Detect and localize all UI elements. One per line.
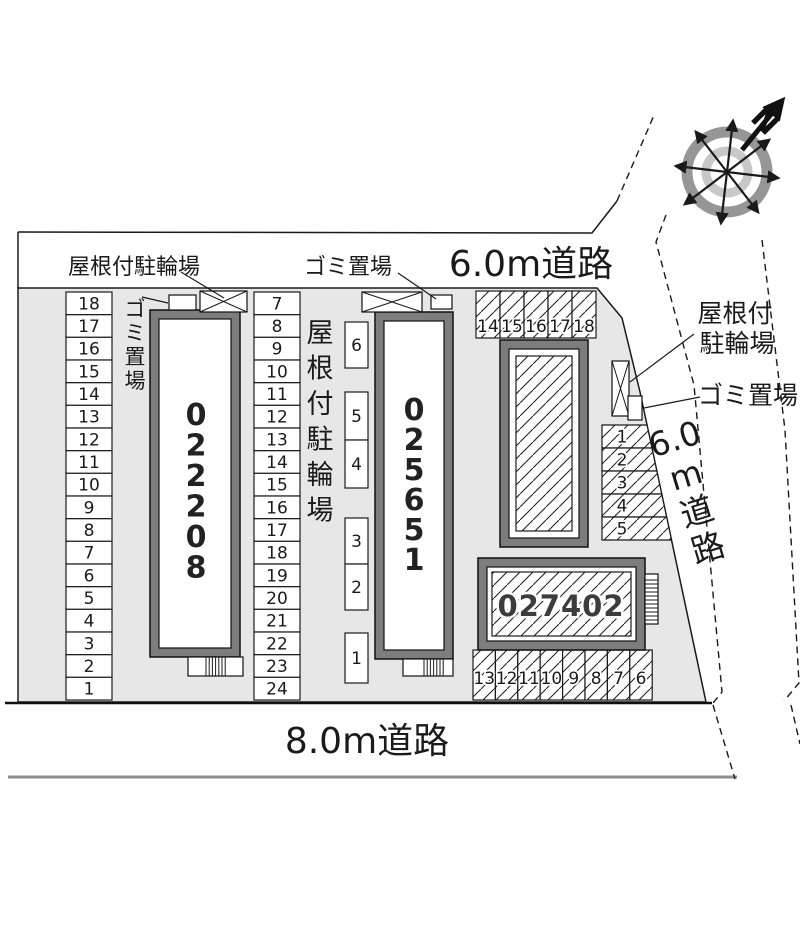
parking-space-number: 11 [518,669,540,689]
garbage-box-right [628,396,642,420]
road-label-top: 6.0m道路 [449,244,613,285]
building-number-vertical: 022208 [186,398,207,586]
vertical-text-char: 駐 [307,425,334,456]
parking-space-number: 7 [272,294,283,314]
parking-row-bottom: 131211109876 [473,650,652,700]
parking-space-number: 2 [84,657,95,677]
vertical-text-char: 場 [307,496,334,527]
parking-space-number: 16 [78,340,100,360]
parking-space-number: 8 [591,669,602,689]
parking-space-number: 3 [617,474,628,494]
pointer-right-garbage [644,397,700,408]
vertical-text-char: ミ [125,321,146,345]
parking-space-number: 12 [496,669,518,689]
road-label-bottom: 8.0m道路 [285,721,449,762]
vertical-text-char: 置 [125,345,146,369]
parking-space-number: 9 [84,498,95,518]
parking-space-number: 16 [266,498,288,518]
parking-space-number: 1 [84,680,95,700]
vertical-text-char: 輪 [307,460,334,491]
stairs-middle-building [403,659,453,676]
parking-space-number: 23 [266,657,288,677]
parking-space-number: 6 [636,669,647,689]
parking-space-number: 10 [266,362,288,382]
vertical-text-char: ゴ [125,297,146,321]
parking-space-number: 14 [78,385,100,405]
parking-space-number: 12 [78,430,100,450]
parking-space-number: 6 [84,566,95,586]
parking-space-number: 6 [351,336,362,356]
parking-space-number: 15 [501,317,523,337]
parking-space-number: 12 [266,408,288,428]
right-road-left-edge-crossing [713,705,735,779]
vertical-text-char: 8 [186,551,207,586]
bicycle-parking-box-left [200,291,247,312]
parking-space-number: 2 [351,578,362,598]
parking-space [602,517,672,540]
parking-space-number: 18 [573,317,595,337]
parking-space-number: 4 [617,497,628,517]
vertical-text-char: 根 [307,354,334,385]
label-right-bicycle-line2: 駐輪場 [699,329,774,358]
parking-space [602,448,657,471]
parking-space [602,471,662,494]
vertical-text-char: 屋 [307,318,334,349]
building-025651: 025651 [375,312,453,659]
bicycle-parking-box-middle [362,292,422,312]
parking-space-number: 5 [84,589,95,609]
parking-row-top-right: 1415161718 [476,291,596,338]
label-top-bicycle: 屋根付駐輪場 [68,255,200,280]
parking-space-number: 10 [541,669,563,689]
parking-space-number: 1 [617,428,628,448]
label-left-garbage-vertical: ゴミ置場 [125,297,146,393]
parking-space-number: 22 [266,634,288,654]
parking-space-number: 13 [78,408,100,428]
parking-space-number: 5 [617,520,628,540]
garbage-box-left [169,295,196,310]
label-top-garbage: ゴミ置場 [304,255,392,280]
parking-space-number: 15 [266,476,288,496]
building-hatched [500,340,588,547]
label-right-bicycle-line1: 屋根付 [697,299,772,328]
parking-space-number: 4 [84,612,95,632]
parking-space-number: 7 [613,669,624,689]
parking-space-number: 11 [266,385,288,405]
compass: N [676,100,786,223]
parking-space-number: 2 [617,451,628,471]
parking-space-number: 1 [351,649,362,669]
building-number-vertical: 025651 [404,393,425,578]
parking-space-number: 3 [351,532,362,552]
parking-space-number: 7 [84,544,95,564]
parking-space-number: 21 [266,612,288,632]
parking-space-number: 18 [266,544,288,564]
building-hatch-area [516,356,572,531]
parking-space-number: 11 [78,453,100,473]
pointer-right-bicycle [630,334,694,382]
parking-space-number: 17 [266,521,288,541]
parking-space-number: 3 [84,634,95,654]
parking-space-number: 14 [477,317,499,337]
parking-space-number: 20 [266,589,288,609]
vertical-text-char: 付 [307,389,334,420]
parking-space-number: 13 [473,669,495,689]
parking-space [602,494,667,517]
parking-space-number: 9 [272,340,283,360]
parking-column-left: 181716151413121110987654321 [66,292,112,700]
vertical-text-char: 1 [404,543,425,578]
parking-space-number: 17 [549,317,571,337]
site-plan-page: N 181716151413121110987654321 7891011121… [0,0,800,942]
parking-space-number: 18 [78,294,100,314]
top-road-edge [18,201,617,233]
parking-space-number: 17 [78,317,100,337]
parking-space-number: 8 [84,521,95,541]
parking-space-number: 8 [272,317,283,337]
site-plan-drawing: N 181716151413121110987654321 7891011121… [0,0,800,942]
parking-space-number: 24 [266,680,288,700]
parking-space-number: 13 [266,430,288,450]
parking-column-middle: 789101112131415161718192021222324 [254,292,300,700]
right-road-right-edge-crossing [791,705,800,744]
label-right-garbage: ゴミ置場 [698,381,798,410]
parking-space-number: 15 [78,362,100,382]
bicycle-parking-box-right [612,361,629,416]
parking-space-number: 16 [525,317,547,337]
dashed-boundary-topright [617,113,655,201]
road-label-char: 路 [686,525,729,572]
building-027402: 027402 [478,558,645,650]
building-number: 027402 [497,589,624,623]
parking-space-number: 19 [266,566,288,586]
vertical-text-char: 場 [125,369,146,393]
parking-space-number: 14 [266,453,288,473]
building-022208: 022208 [150,310,240,657]
parking-space-number: 4 [351,455,362,475]
parking-space-number: 9 [568,669,579,689]
parking-space-number: 10 [78,476,100,496]
parking-space-number: 5 [351,407,362,427]
